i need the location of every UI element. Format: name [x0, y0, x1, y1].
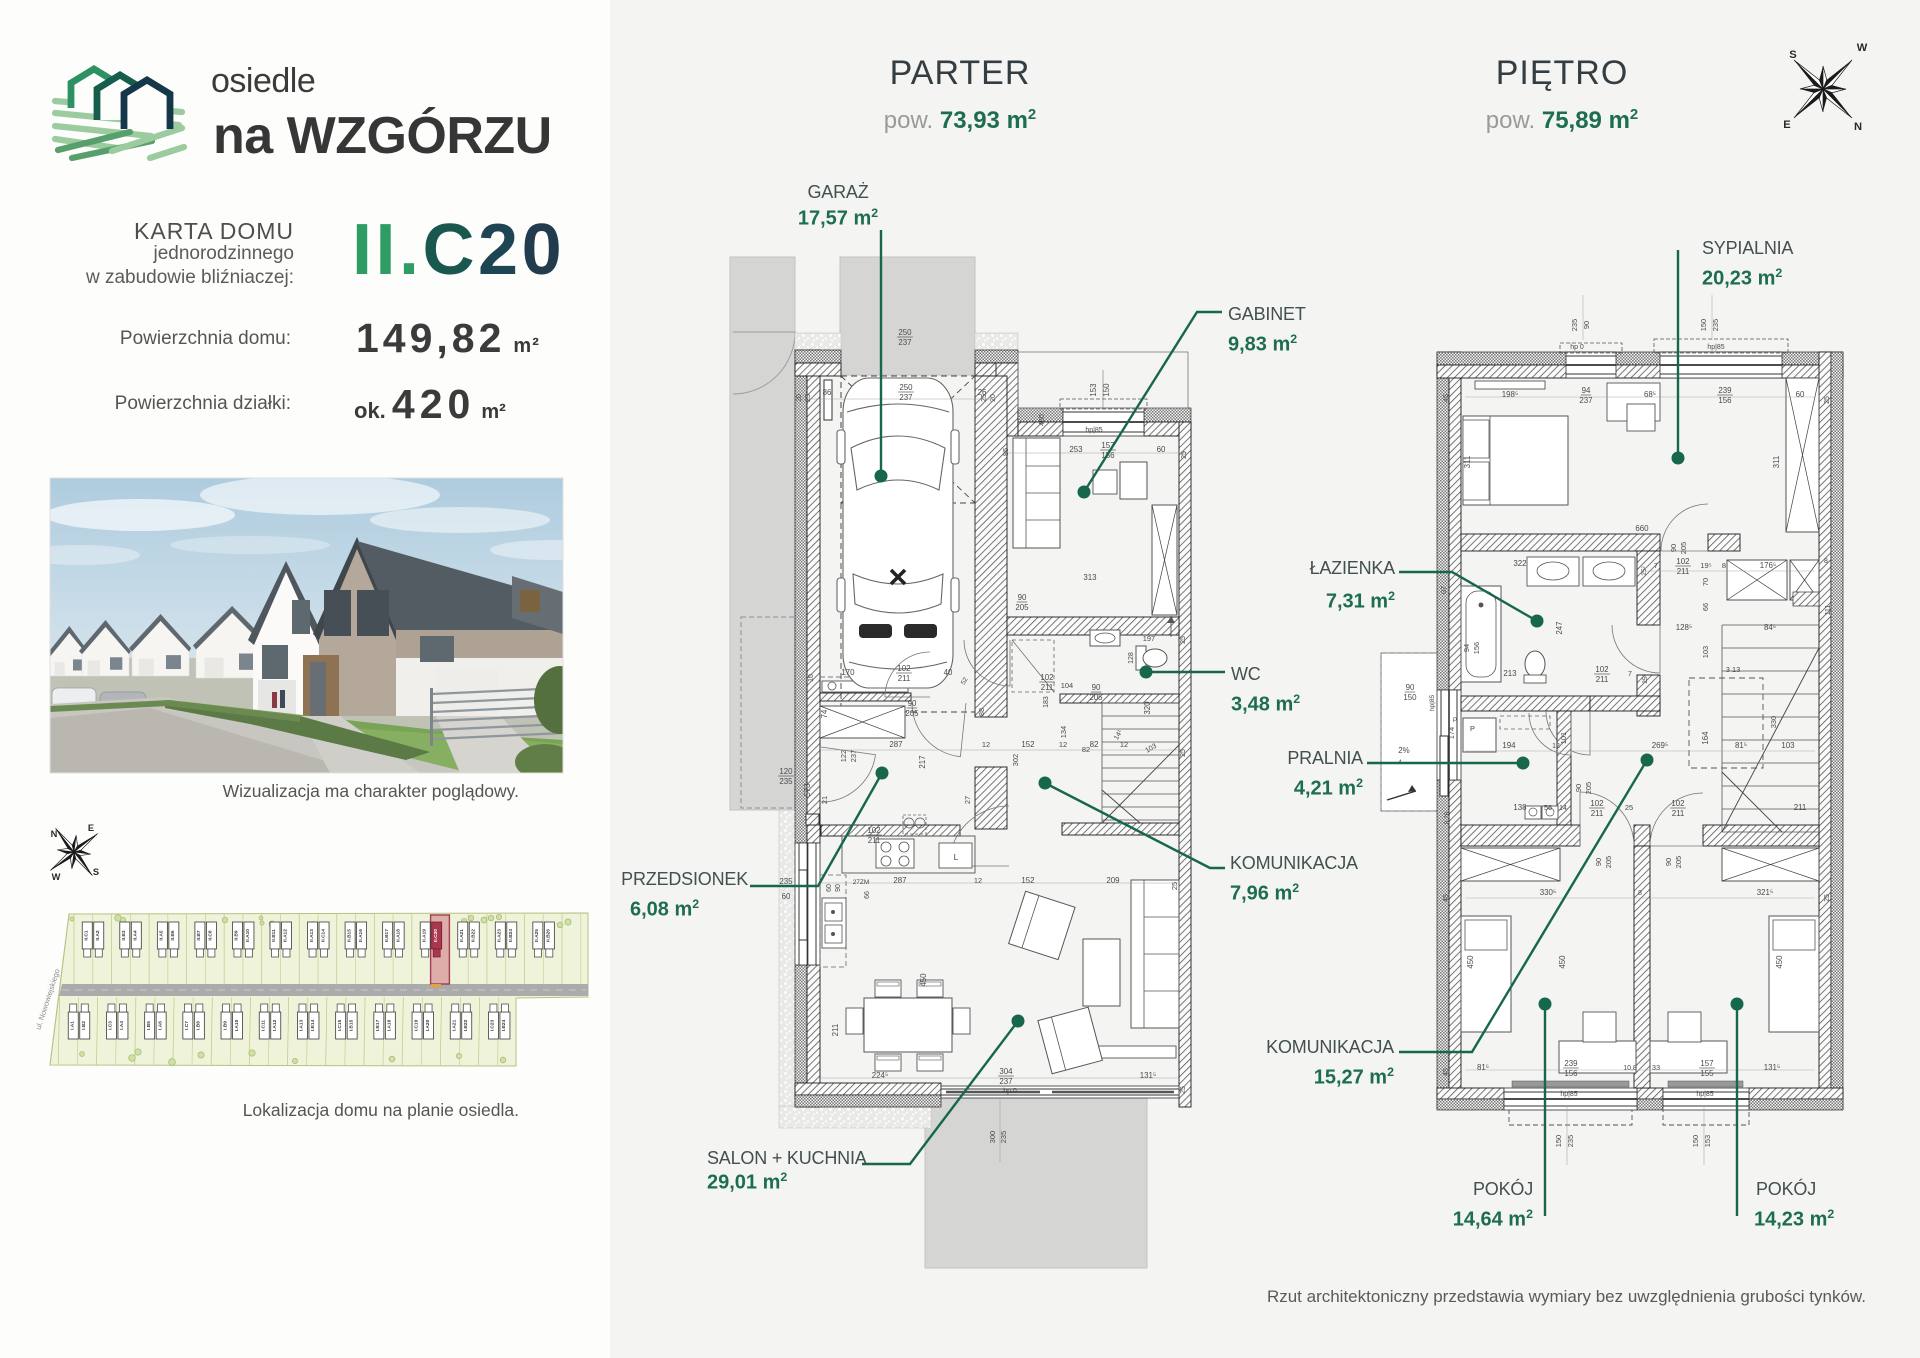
svg-text:211: 211	[831, 1023, 840, 1036]
svg-text:90: 90	[1664, 858, 1673, 866]
svg-text:60: 60	[782, 892, 791, 901]
svg-text:122: 122	[839, 750, 848, 762]
svg-text:250: 250	[899, 383, 913, 392]
svg-text:120: 120	[779, 767, 793, 776]
svg-text:302: 302	[1011, 754, 1020, 766]
svg-text:209: 209	[1106, 876, 1120, 885]
svg-text:81⁵: 81⁵	[1477, 1063, 1489, 1072]
svg-text:235: 235	[999, 1131, 1008, 1143]
svg-text:25: 25	[981, 394, 988, 402]
svg-text:II.B26: II.B26	[546, 929, 552, 942]
svg-text:250: 250	[898, 328, 912, 337]
svg-text:I.B5: I.B5	[146, 1021, 152, 1030]
svg-text:450: 450	[1039, 414, 1046, 426]
svg-text:19⁵: 19⁵	[1700, 561, 1711, 570]
svg-text:I.A12: I.A12	[272, 1019, 278, 1031]
svg-text:25: 25	[1824, 894, 1831, 902]
svg-text:311: 311	[1772, 455, 1781, 468]
svg-text:287: 287	[889, 740, 902, 749]
svg-text:8: 8	[1722, 561, 1726, 570]
svg-text:102: 102	[1671, 799, 1684, 808]
svg-text:103: 103	[1144, 743, 1158, 755]
svg-text:82: 82	[1090, 740, 1099, 749]
svg-text:103: 103	[1701, 646, 1710, 658]
svg-text:157: 157	[1700, 1059, 1713, 1068]
svg-text:211: 211	[1677, 567, 1690, 576]
svg-text:I.A10: I.A10	[234, 1019, 240, 1031]
svg-text:I.A20: I.A20	[425, 1019, 431, 1031]
svg-text:313: 313	[1083, 573, 1097, 582]
svg-text:I.B17: I.B17	[375, 1019, 381, 1031]
svg-text:7: 7	[1628, 671, 1632, 678]
svg-text:90: 90	[908, 699, 917, 708]
svg-text:25: 25	[1181, 451, 1188, 459]
svg-text:90: 90	[1594, 858, 1603, 866]
svg-text:II.B24: II.B24	[508, 929, 514, 942]
svg-text:66: 66	[864, 891, 871, 899]
svg-text:150: 150	[1691, 1135, 1700, 1147]
svg-text:194: 194	[1502, 741, 1516, 750]
svg-text:174: 174	[1447, 727, 1456, 739]
svg-text:573: 573	[803, 783, 812, 797]
svg-text:320: 320	[1143, 701, 1152, 715]
svg-text:205: 205	[1089, 693, 1103, 702]
svg-text:45: 45	[1443, 394, 1450, 402]
svg-text:247: 247	[1555, 621, 1564, 634]
svg-text:94: 94	[1462, 644, 1471, 652]
svg-text:II.B15: II.B15	[346, 929, 352, 942]
svg-text:269⁵: 269⁵	[1652, 741, 1668, 750]
svg-text:hp|85: hp|85	[1696, 1091, 1713, 1098]
svg-text:239: 239	[1718, 386, 1732, 395]
svg-text:II.C14: II.C14	[320, 929, 326, 942]
svg-text:10: 10	[808, 674, 815, 682]
svg-text:II.B3: II.B3	[121, 930, 127, 941]
svg-text:90: 90	[1669, 544, 1678, 552]
svg-text:hp|85: hp|85	[1085, 427, 1102, 434]
svg-text:102: 102	[1590, 799, 1603, 808]
svg-text:I.B22: I.B22	[463, 1019, 469, 1031]
svg-text:102: 102	[1595, 665, 1608, 674]
svg-text:hp|85: hp|85	[1429, 695, 1436, 712]
svg-text:153: 153	[1089, 383, 1098, 397]
svg-text:128: 128	[1128, 652, 1135, 664]
svg-text:25: 25	[1180, 749, 1187, 757]
svg-text:198⁵: 198⁵	[1502, 390, 1518, 399]
svg-text:II.A19: II.A19	[421, 929, 427, 942]
svg-text:W: W	[52, 872, 61, 882]
svg-text:237: 237	[898, 338, 911, 347]
svg-text:237: 237	[899, 393, 912, 402]
svg-text:101: 101	[1559, 732, 1568, 744]
svg-text:II.C1: II.C1	[83, 930, 89, 941]
svg-text:hp|85: hp|85	[1707, 344, 1724, 351]
svg-text:85: 85	[1001, 448, 1010, 456]
svg-text:450: 450	[919, 973, 928, 987]
svg-text:82: 82	[1082, 745, 1090, 754]
svg-text:235: 235	[779, 777, 793, 786]
svg-text:45: 45	[1443, 894, 1450, 902]
svg-text:II.B17: II.B17	[384, 929, 390, 942]
svg-text:450: 450	[1558, 955, 1567, 969]
svg-text:I.C23: I.C23	[490, 1019, 496, 1031]
svg-text:74: 74	[820, 709, 829, 718]
svg-text:I.A6: I.A6	[157, 1021, 163, 1030]
svg-text:197: 197	[1143, 634, 1155, 643]
svg-text:176⁵: 176⁵	[1760, 561, 1776, 570]
svg-text:40: 40	[944, 668, 953, 677]
svg-text:25²: 25²	[1641, 565, 1648, 575]
svg-text:155: 155	[1700, 1069, 1714, 1078]
svg-text:27: 27	[963, 796, 972, 804]
svg-text:94: 94	[1582, 386, 1591, 395]
svg-text:S: S	[93, 867, 99, 877]
svg-text:07: 07	[1441, 586, 1448, 594]
svg-text:224⁵: 224⁵	[872, 1071, 888, 1080]
svg-text:150: 150	[1403, 693, 1417, 702]
svg-text:II.A21: II.A21	[459, 929, 465, 942]
svg-text:25: 25	[1180, 636, 1187, 644]
svg-text:II.B6: II.B6	[170, 930, 176, 941]
svg-text:25: 25	[805, 394, 812, 402]
svg-text:I.A1: I.A1	[69, 1021, 75, 1030]
svg-text:66: 66	[1701, 603, 1710, 611]
svg-text:33: 33	[1652, 1063, 1660, 1072]
svg-text:213: 213	[1503, 669, 1517, 678]
svg-text:450: 450	[1466, 955, 1475, 969]
svg-text:I.B2: I.B2	[81, 1021, 87, 1030]
svg-text:I.C19: I.C19	[413, 1019, 419, 1031]
svg-text:156: 156	[1564, 1069, 1578, 1078]
svg-text:52: 52	[960, 676, 970, 686]
svg-text:205: 205	[1584, 782, 1593, 794]
svg-text:90: 90	[1018, 593, 1027, 602]
svg-text:E: E	[88, 823, 94, 833]
svg-text:150: 150	[1102, 383, 1111, 397]
svg-text:156: 156	[1472, 642, 1481, 654]
svg-text:II.C20: II.C20	[433, 929, 439, 942]
svg-text:128⁵: 128⁵	[1676, 623, 1692, 632]
svg-text:235: 235	[1566, 1135, 1575, 1147]
svg-text:3 13: 3 13	[1726, 665, 1740, 674]
svg-text:253: 253	[1069, 445, 1083, 454]
svg-text:21: 21	[820, 796, 829, 804]
svg-text:10,8: 10,8	[1623, 1065, 1637, 1072]
svg-text:152: 152	[1021, 876, 1034, 885]
svg-text:311: 311	[1463, 455, 1472, 468]
svg-text:211: 211	[1591, 809, 1604, 818]
svg-text:68⁵: 68⁵	[1644, 390, 1656, 399]
svg-text:II.B11: II.B11	[271, 929, 277, 942]
svg-text:L: L	[954, 852, 959, 862]
svg-text:hp 0: hp 0	[1570, 344, 1584, 351]
svg-text:II.A25: II.A25	[534, 929, 540, 942]
svg-text:170: 170	[841, 668, 855, 677]
svg-text:hp 0: hp 0	[1003, 1088, 1017, 1095]
svg-text:152: 152	[1021, 740, 1034, 749]
svg-text:287: 287	[893, 876, 906, 885]
svg-text:25: 25	[1824, 396, 1831, 404]
svg-text:II.A10: II.A10	[245, 929, 251, 942]
svg-text:II.A4: II.A4	[133, 930, 139, 941]
svg-text:81⁵: 81⁵	[1735, 741, 1747, 750]
svg-text:25: 25	[1625, 803, 1633, 812]
svg-text:II.A12: II.A12	[283, 929, 289, 942]
svg-text:321⁵: 321⁵	[1757, 888, 1773, 897]
svg-text:322: 322	[1513, 559, 1526, 568]
svg-text:304: 304	[999, 1067, 1013, 1076]
svg-text:237: 237	[1579, 396, 1592, 405]
svg-text:N: N	[1854, 121, 1862, 133]
svg-text:90: 90	[1574, 784, 1583, 792]
svg-text:E: E	[1783, 119, 1790, 131]
svg-text:205: 205	[1679, 542, 1688, 554]
svg-text:I.C3: I.C3	[108, 1021, 114, 1030]
svg-text:217: 217	[918, 755, 927, 768]
svg-text:70: 70	[1701, 578, 1710, 586]
svg-text:138: 138	[1513, 803, 1527, 812]
svg-text:235: 235	[1711, 319, 1720, 331]
svg-text:I.C7: I.C7	[184, 1021, 190, 1030]
svg-text:90: 90	[1092, 683, 1101, 692]
svg-text:8: 8	[1638, 890, 1642, 897]
svg-text:I.A18: I.A18	[387, 1019, 393, 1031]
svg-text:134: 134	[1059, 726, 1068, 738]
svg-text:II.B7: II.B7	[196, 930, 202, 941]
svg-text:237: 237	[999, 1077, 1012, 1086]
svg-text:183: 183	[1043, 696, 1050, 708]
svg-text:P: P	[1453, 717, 1457, 724]
svg-text:8: 8	[1824, 558, 1828, 565]
svg-text:II.B22: II.B22	[470, 929, 476, 942]
svg-text:111: 111	[1825, 605, 1832, 616]
svg-text:104: 104	[1061, 681, 1073, 690]
svg-text:150: 150	[1554, 1135, 1563, 1147]
svg-text:239: 239	[1564, 1059, 1578, 1068]
svg-text:12: 12	[974, 876, 982, 885]
svg-text:153: 153	[1703, 1135, 1712, 1147]
svg-text:131⁵: 131⁵	[1140, 1071, 1156, 1080]
svg-text:205: 205	[905, 709, 919, 718]
svg-text:20: 20	[990, 394, 997, 402]
svg-text:164: 164	[1701, 731, 1710, 745]
svg-text:25: 25	[1180, 1086, 1187, 1094]
svg-text:12: 12	[982, 740, 990, 749]
svg-text:102: 102	[1676, 557, 1689, 566]
svg-text:86: 86	[823, 388, 832, 397]
svg-text:II.A18: II.A18	[395, 929, 401, 942]
svg-text:12: 12	[1120, 740, 1128, 749]
svg-text:8,20: 8,20	[1444, 811, 1451, 824]
svg-text:hp|85: hp|85	[1560, 1091, 1577, 1098]
svg-text:237: 237	[849, 750, 858, 762]
svg-text:I.A13: I.A13	[299, 1019, 305, 1031]
svg-text:211: 211	[1041, 683, 1054, 692]
svg-text:88: 88	[977, 708, 986, 716]
svg-text:II.C8: II.C8	[208, 930, 214, 941]
svg-text:205: 205	[1015, 603, 1029, 612]
svg-text:I.B14: I.B14	[310, 1019, 316, 1031]
svg-text:211: 211	[1596, 675, 1609, 684]
svg-text:II.A16: II.A16	[358, 929, 364, 942]
svg-text:211: 211	[868, 836, 881, 845]
svg-text:90: 90	[835, 884, 842, 892]
svg-text:I.C11: I.C11	[260, 1020, 266, 1032]
svg-text:N: N	[51, 829, 58, 839]
svg-text:300: 300	[988, 1131, 997, 1143]
svg-text:I.C15: I.C15	[337, 1019, 343, 1031]
svg-text:I.A4: I.A4	[119, 1021, 125, 1030]
svg-text:235: 235	[779, 877, 793, 886]
svg-text:211: 211	[1794, 803, 1807, 812]
svg-text:W: W	[1857, 42, 1868, 54]
svg-text:27ZM: 27ZM	[853, 879, 870, 886]
svg-text:211: 211	[1672, 809, 1685, 818]
svg-text:25²: 25²	[1642, 673, 1649, 683]
svg-text:156: 156	[1718, 396, 1732, 405]
svg-text:II.A23: II.A23	[497, 929, 503, 942]
svg-text:150: 150	[1699, 319, 1708, 331]
svg-text:235: 235	[1570, 319, 1579, 331]
svg-text:90: 90	[1582, 321, 1591, 329]
svg-text:II.B9: II.B9	[234, 930, 240, 941]
svg-text:56: 56	[1544, 803, 1552, 812]
svg-text:60: 60	[1796, 390, 1805, 399]
svg-text:211: 211	[898, 674, 911, 683]
svg-text:102: 102	[1040, 673, 1053, 682]
svg-text:II.A13: II.A13	[309, 929, 315, 942]
svg-text:7: 7	[1654, 561, 1658, 570]
svg-text:103: 103	[1781, 741, 1795, 750]
svg-text:84⁵: 84⁵	[1764, 623, 1776, 632]
svg-text:131⁵: 131⁵	[1764, 1063, 1780, 1072]
svg-text:330: 330	[1769, 716, 1778, 728]
svg-text:I.B8: I.B8	[196, 1021, 202, 1030]
svg-text:14: 14	[1559, 805, 1567, 812]
svg-text:I.A21: I.A21	[451, 1019, 457, 1031]
svg-text:330⁵: 330⁵	[1540, 888, 1556, 897]
svg-text:II.A5: II.A5	[159, 930, 165, 941]
svg-text:12: 12	[1059, 740, 1067, 749]
svg-text:25: 25	[1170, 882, 1179, 890]
svg-text:P: P	[1470, 724, 1475, 733]
svg-text:I.B24: I.B24	[501, 1019, 507, 1031]
svg-text:60: 60	[826, 884, 833, 892]
svg-text:45: 45	[1443, 1068, 1450, 1076]
svg-text:60: 60	[1157, 445, 1166, 454]
svg-text:I.B15: I.B15	[348, 1019, 354, 1031]
svg-text:660: 660	[1635, 524, 1649, 533]
svg-text:2%: 2%	[1398, 746, 1409, 755]
svg-text:205: 205	[1674, 856, 1683, 868]
svg-text:102: 102	[867, 826, 880, 835]
svg-text:102: 102	[897, 664, 910, 673]
svg-text:20: 20	[796, 394, 803, 402]
svg-text:90: 90	[1406, 683, 1415, 692]
svg-text:205: 205	[1604, 856, 1613, 868]
svg-text:450: 450	[1775, 955, 1784, 969]
svg-text:S: S	[1789, 49, 1796, 61]
svg-text:II.A2: II.A2	[95, 930, 101, 941]
svg-text:I.B9: I.B9	[222, 1021, 228, 1030]
